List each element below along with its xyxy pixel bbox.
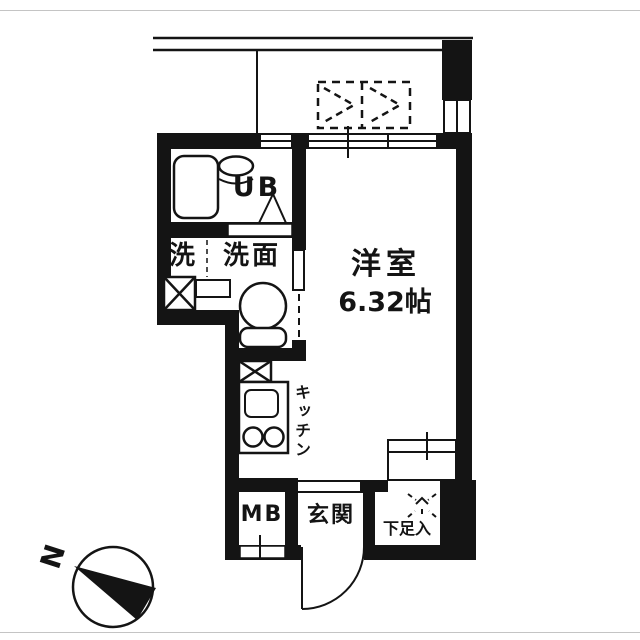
entrance-door-swing-icon [302, 547, 364, 609]
shoe-cabinet-label: 下足入 [374, 521, 440, 537]
window-small-icon [260, 134, 292, 148]
shoe-cabinet-dashed-icon [408, 494, 436, 517]
laundry-label: 洗 [169, 243, 195, 269]
pillar [442, 40, 472, 100]
toilet-icon [240, 283, 286, 347]
compass-icon: N [34, 540, 156, 627]
compass-north-label: N [34, 540, 73, 572]
kitchen-label: キッチン [293, 384, 309, 460]
refrigerator-space-icon [239, 361, 271, 382]
window-large-icon [308, 126, 437, 158]
room-step-counter [388, 432, 456, 480]
room-size-label: 6.32帖 [320, 289, 450, 316]
entrance-label: 玄関 [299, 505, 363, 527]
unit-bath-label: UB [228, 174, 286, 201]
floorplan-drawing: N [0, 0, 640, 640]
dashed-storage-icon [318, 82, 410, 128]
entrance-step-lines [298, 481, 363, 492]
washing-machine-icon [164, 277, 195, 310]
washroom-doorway [290, 250, 308, 292]
floorplan-canvas: N UB 洗 洗面 キッチン 洋室 6.32帖 MB 玄関 下足入 [0, 0, 640, 640]
bath-doorway [228, 224, 292, 236]
side-window-icon [444, 100, 470, 133]
room-name-label: 洋室 [330, 250, 442, 280]
meter-box-vent [240, 535, 285, 558]
kitchen-unit-icon [239, 382, 288, 453]
meter-box-label: MB [238, 504, 286, 526]
toilet-door-dashed [292, 292, 306, 340]
vanity-counter [196, 280, 230, 297]
balcony-boundary-lines [153, 38, 473, 133]
bathtub-icon [174, 156, 218, 218]
washroom-label: 洗面 [223, 243, 281, 269]
